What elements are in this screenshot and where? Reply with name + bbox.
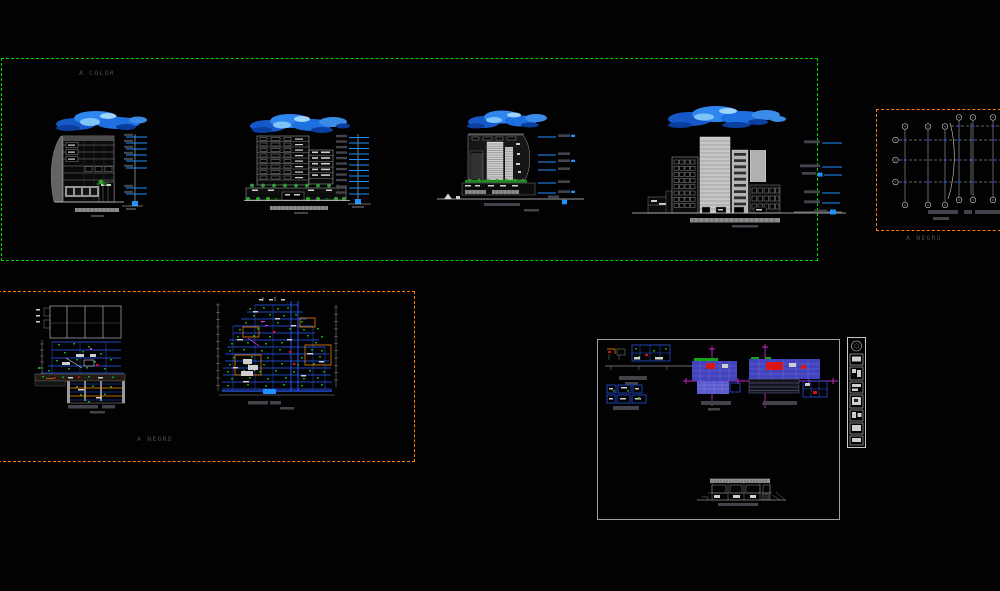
detail-section-1 — [605, 345, 697, 385]
title-strip-cells — [850, 354, 863, 445]
grid-plan-drawing[interactable] — [876, 109, 1000, 231]
cad-canvas[interactable]: A COLOR — [0, 0, 1000, 591]
viewport-sections-label: A NEGRO — [137, 435, 173, 443]
level-markers — [538, 134, 575, 204]
dimension-text — [928, 210, 1000, 220]
detail-mini-elevation — [697, 479, 786, 506]
title-strip-drawings — [847, 337, 866, 448]
elevation-drawing-3[interactable] — [432, 95, 592, 230]
viewport-grid-label: A NEGRO — [906, 234, 942, 242]
detail-plan-1 — [683, 346, 744, 411]
building-elevation — [51, 136, 124, 212]
dimension-text — [91, 215, 104, 217]
building-section — [35, 306, 125, 403]
dimension-text — [248, 401, 294, 410]
level-markers — [122, 134, 147, 210]
elevation-drawing-2[interactable] — [238, 100, 388, 225]
dimension-text — [294, 212, 308, 214]
dimension-text — [732, 225, 758, 228]
building-elevation — [632, 137, 846, 223]
section-drawing-2[interactable] — [203, 291, 343, 416]
elevation-drawing-4[interactable] — [628, 95, 858, 230]
dimension-text — [484, 203, 539, 212]
detail-section-2 — [607, 385, 646, 410]
dimension-text — [68, 405, 115, 414]
detail-plan-2 — [743, 344, 838, 408]
clouds-icon — [467, 111, 547, 129]
building-section — [216, 297, 338, 395]
building-elevation — [244, 136, 350, 210]
clouds-icon — [250, 114, 350, 133]
stamp-logo-icon — [852, 341, 862, 351]
clouds-icon — [56, 111, 147, 131]
clouds-icon — [668, 106, 786, 128]
elevation-drawing-1[interactable] — [38, 98, 188, 228]
level-markers — [794, 140, 842, 214]
viewport-color-label: A COLOR — [79, 69, 115, 77]
building-elevation — [437, 134, 584, 199]
details-drawings[interactable] — [597, 339, 840, 520]
column-grid — [893, 115, 1000, 208]
section-drawing-1[interactable] — [18, 296, 168, 416]
